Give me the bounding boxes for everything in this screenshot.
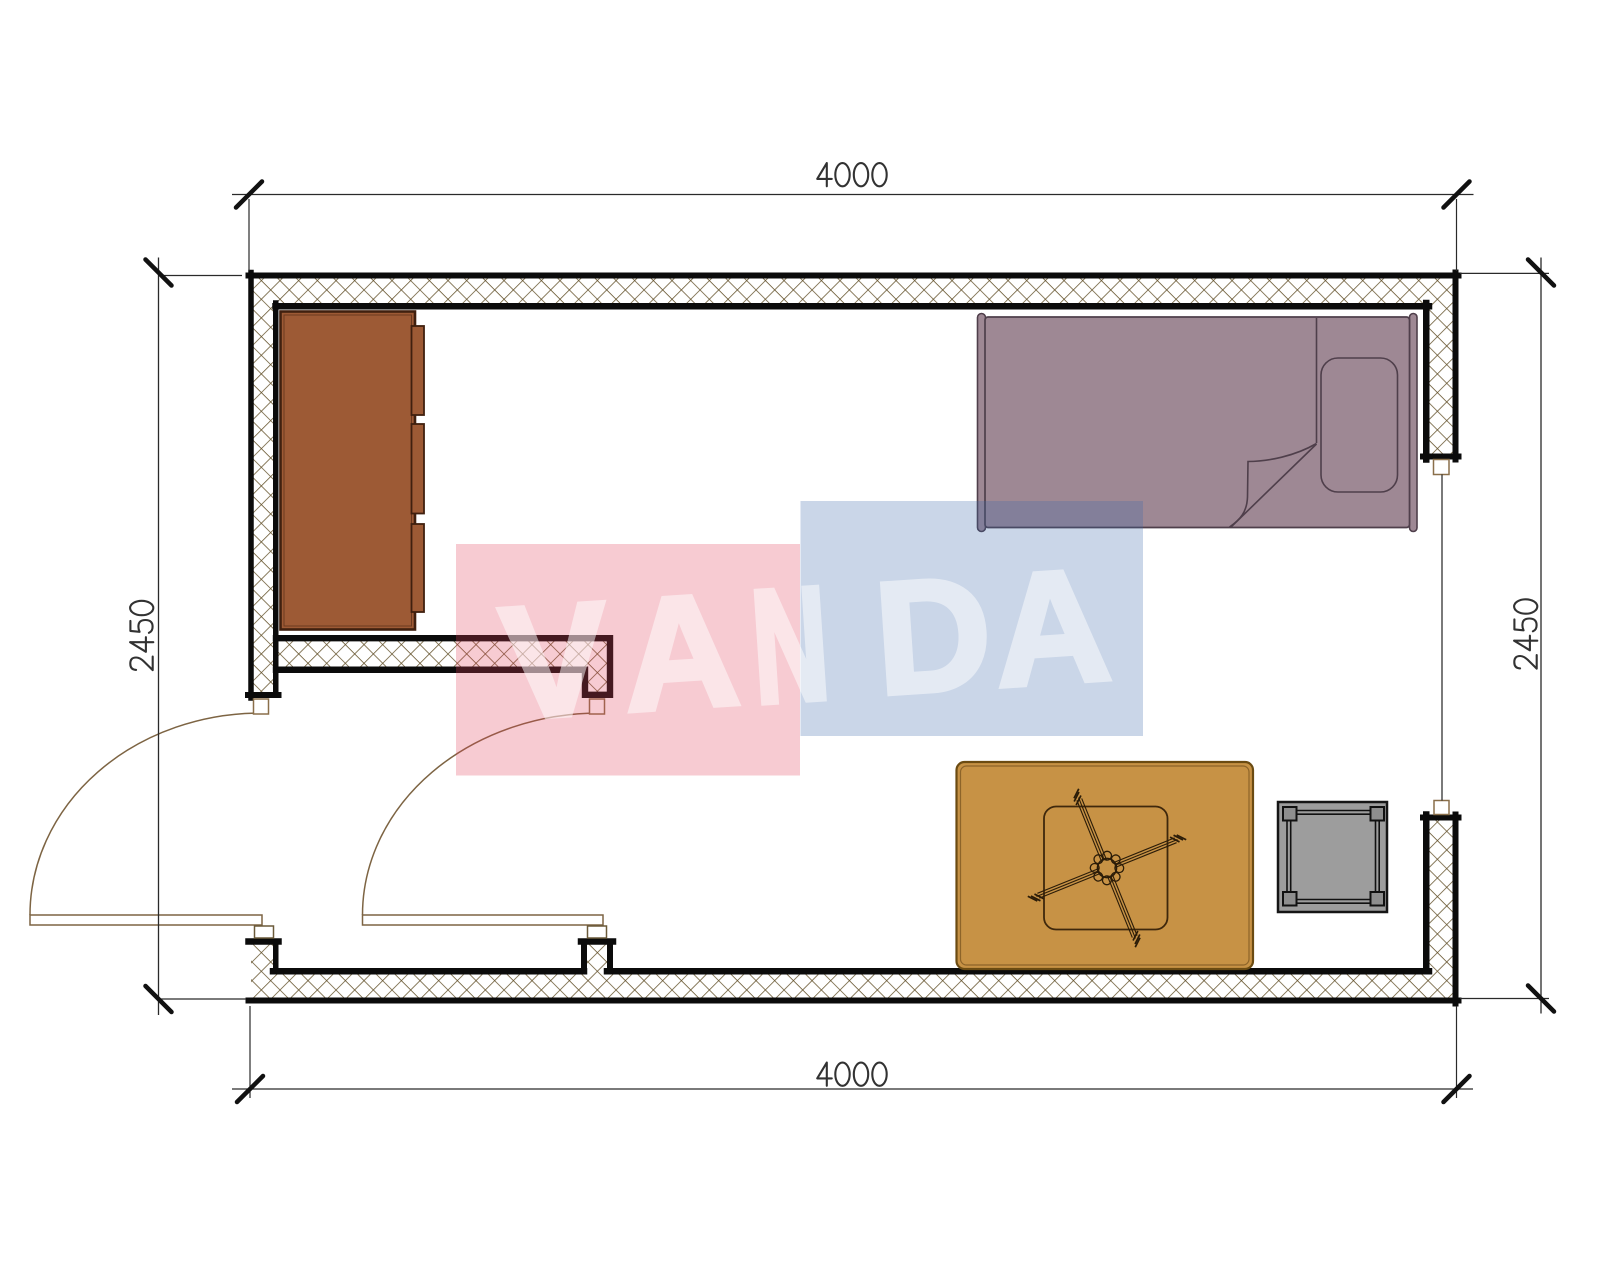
svg-text:V: V [495, 568, 613, 754]
svg-text:A: A [617, 559, 744, 745]
svg-text:N: N [747, 553, 834, 737]
svg-text:D: D [870, 542, 997, 728]
svg-text:A: A [988, 534, 1115, 720]
